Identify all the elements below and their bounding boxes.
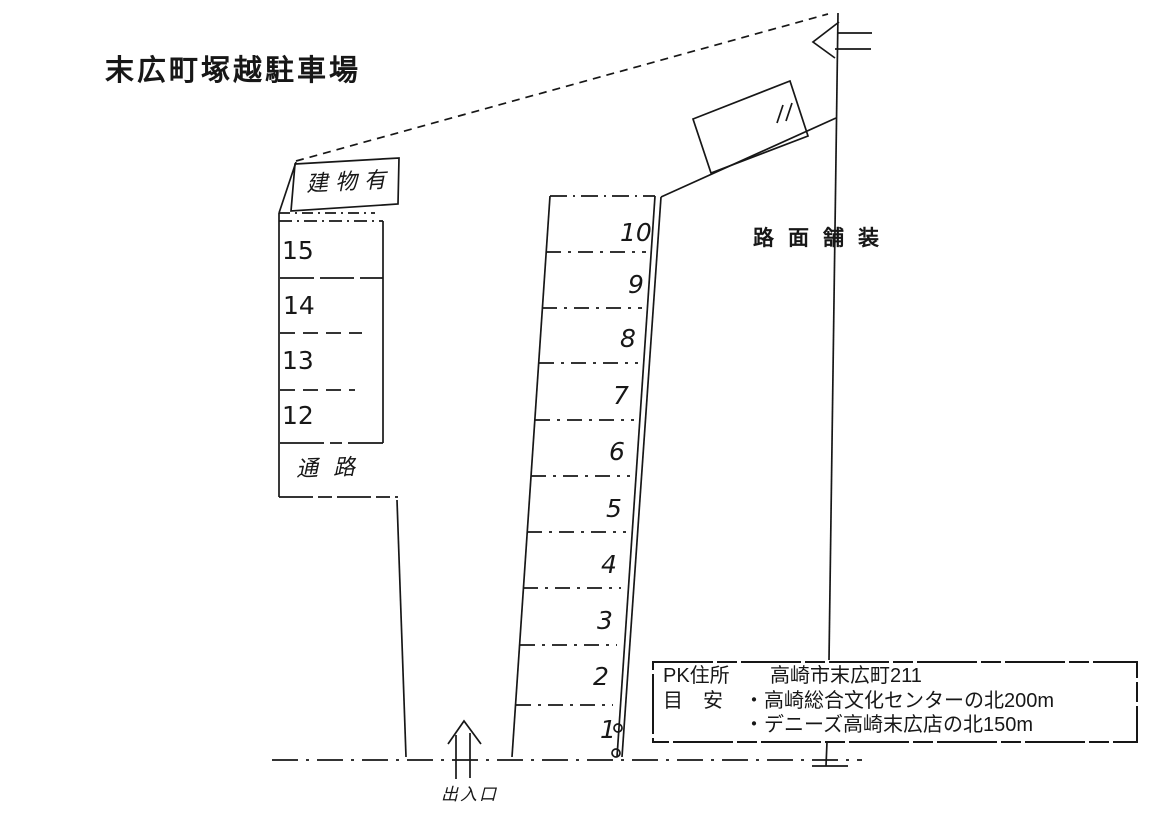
- parking-map-page: 末広町塚越駐車場 建物有 15 14 13 12 通路 10 9 8 7 6 5…: [0, 0, 1176, 827]
- road-edge-line-foot: [812, 742, 848, 766]
- space-label-12: 12: [282, 402, 314, 430]
- info-landmark-value-2: ・デニーズ高崎末広店の北150m: [744, 714, 1033, 736]
- space-label-7: 7: [613, 382, 629, 410]
- info-address-value: 高崎市末広町211: [770, 665, 922, 687]
- space-label-9: 9: [628, 271, 644, 299]
- entrance-label: 出入口: [441, 786, 498, 805]
- boundary-top-diagonal: [296, 14, 828, 161]
- space-label-3: 3: [597, 607, 613, 635]
- page-title: 末広町塚越駐車場: [105, 56, 361, 88]
- boundary-right-diagonal: [661, 118, 836, 197]
- space-label-13: 13: [282, 347, 314, 375]
- road-arrow-shafts: [835, 33, 872, 49]
- middle-column-dividers: [516, 252, 646, 705]
- info-address-key: PK住所: [663, 665, 730, 687]
- info-landmark-key: 目 安: [663, 690, 723, 712]
- structure-rectangle: [693, 81, 808, 173]
- road-edge-line: [829, 13, 838, 660]
- building-label: 建物有: [305, 169, 393, 198]
- space-label-6: 6: [609, 438, 625, 466]
- entrance-arrow-shafts: [456, 733, 470, 779]
- space-label-1: 1: [600, 716, 616, 744]
- space-label-4: 4: [601, 551, 617, 579]
- pole-marker-lower: [612, 749, 620, 757]
- road-arrow-head: [813, 22, 839, 58]
- space-label-2: 2: [593, 663, 609, 691]
- pavement-label: 路面舗装: [753, 227, 893, 250]
- boundary-lower-left-vertical: [397, 500, 406, 757]
- aisle-label: 通路: [296, 456, 371, 483]
- structure-hatch-marks: [777, 103, 792, 123]
- space-label-15: 15: [282, 237, 314, 265]
- entrance-arrow-head: [448, 721, 481, 744]
- info-landmark-value-1: ・高崎総合文化センターの北200m: [744, 690, 1054, 712]
- space-label-5: 5: [606, 495, 622, 523]
- space-label-10: 10: [620, 219, 652, 247]
- space-label-14: 14: [283, 292, 315, 320]
- space-label-8: 8: [620, 325, 636, 353]
